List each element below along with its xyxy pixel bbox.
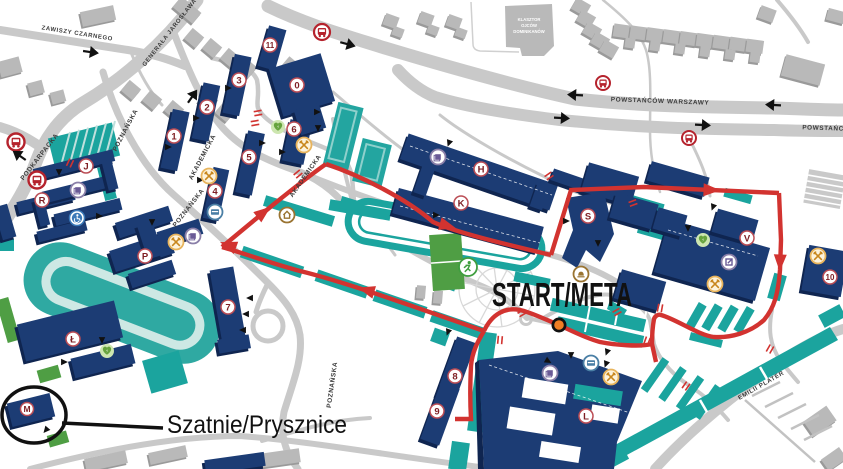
svg-text:10: 10 (826, 273, 835, 282)
svg-text:8: 8 (452, 371, 457, 382)
svg-text:9: 9 (434, 406, 439, 417)
svg-text:DOMINIKANÓW: DOMINIKANÓW (513, 29, 544, 34)
svg-text:11: 11 (266, 41, 275, 50)
svg-text:L: L (583, 411, 589, 422)
svg-text:START/META: START/META (492, 276, 632, 313)
svg-text:P: P (142, 251, 149, 262)
svg-text:Szatnie/Prysznice: Szatnie/Prysznice (167, 411, 347, 439)
svg-text:0: 0 (294, 80, 299, 91)
svg-text:5: 5 (246, 152, 252, 163)
svg-text:K: K (458, 198, 465, 209)
svg-text:7: 7 (225, 302, 230, 313)
svg-text:4: 4 (212, 186, 218, 197)
svg-text:V: V (744, 233, 751, 244)
svg-text:KLASZTOR: KLASZTOR (518, 17, 541, 22)
svg-text:6: 6 (291, 124, 296, 135)
svg-text:1: 1 (171, 131, 177, 142)
svg-text:S: S (585, 211, 591, 222)
svg-text:H: H (478, 164, 485, 175)
svg-text:M: M (23, 404, 30, 414)
svg-text:OJCÓW: OJCÓW (521, 23, 537, 28)
svg-text:R: R (39, 195, 46, 206)
svg-text:J: J (83, 161, 88, 172)
svg-text:3: 3 (236, 75, 241, 86)
svg-text:Ł: Ł (70, 334, 76, 345)
svg-text:2: 2 (204, 102, 209, 113)
